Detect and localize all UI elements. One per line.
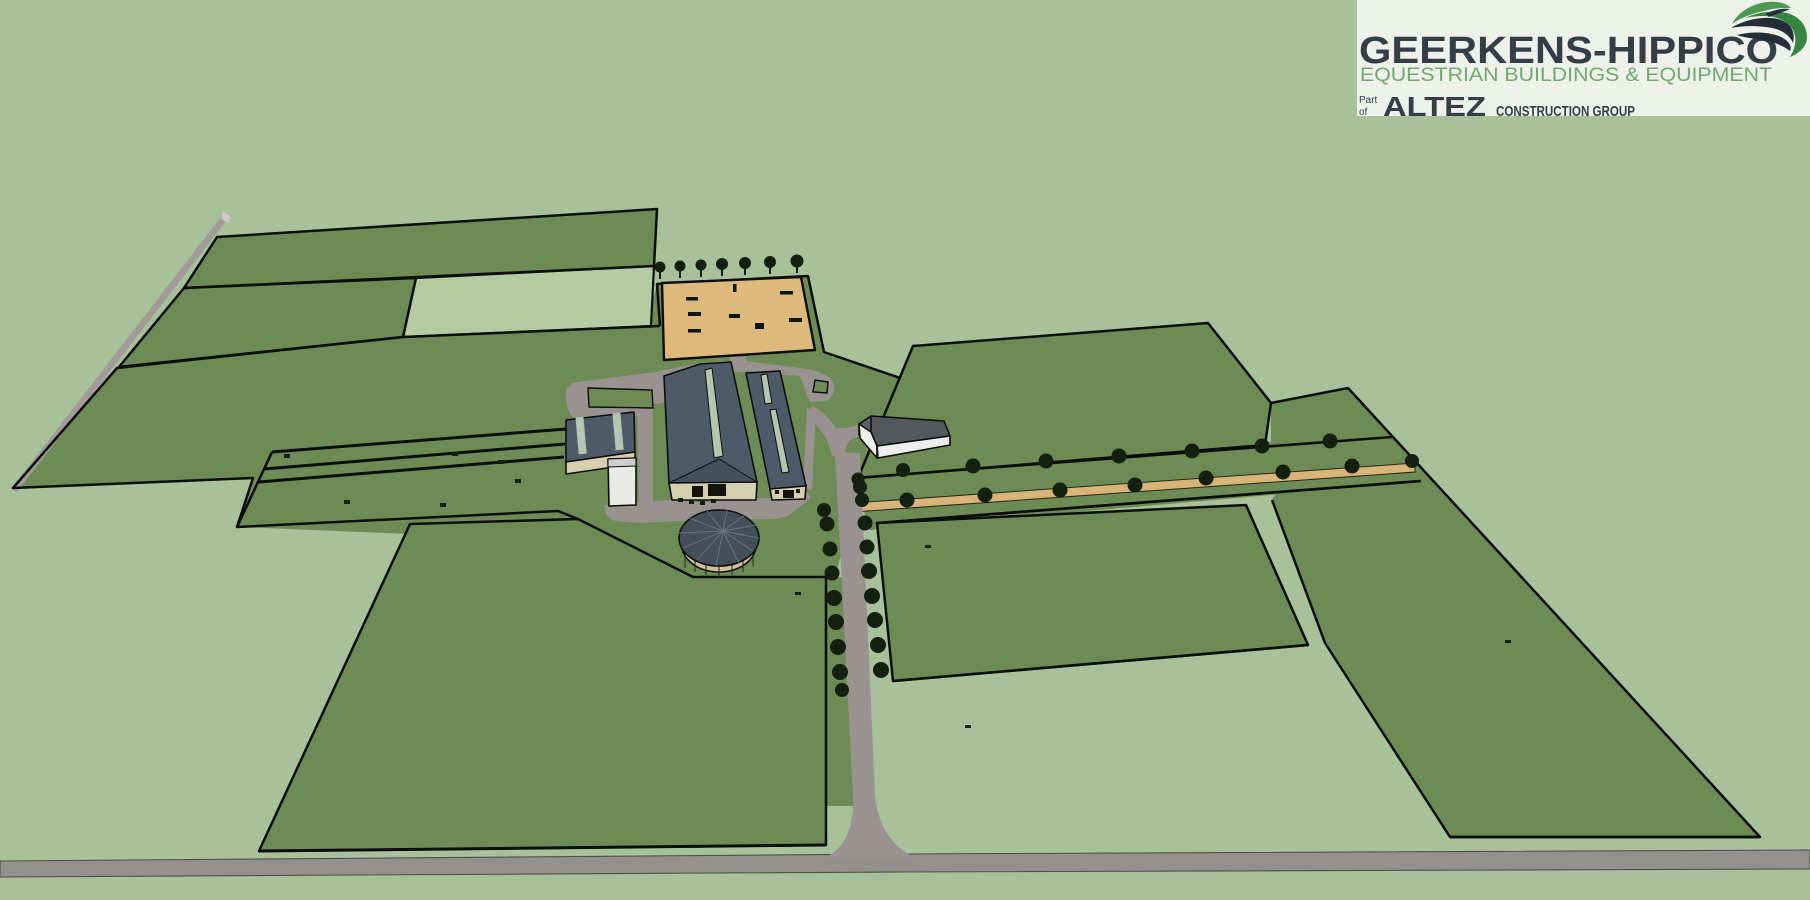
svg-text:of: of <box>1359 107 1368 118</box>
svg-text:EQUESTRIAN BUILDINGS & EQUIPME: EQUESTRIAN BUILDINGS & EQUIPMENT <box>1360 65 1772 86</box>
svg-text:ALTEZ: ALTEZ <box>1383 91 1486 122</box>
svg-text:Part: Part <box>1359 95 1378 106</box>
svg-text:CONSTRUCTION GROUP: CONSTRUCTION GROUP <box>1496 103 1635 120</box>
